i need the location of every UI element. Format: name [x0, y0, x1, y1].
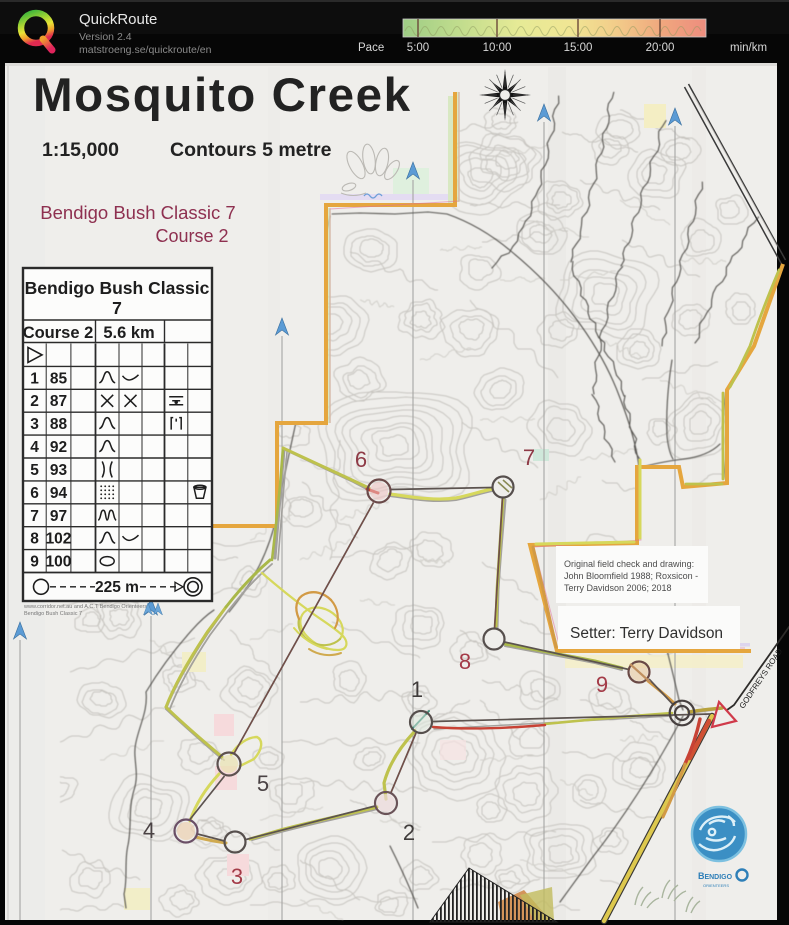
svg-text:Contours 5 metre: Contours 5 metre [170, 139, 332, 161]
svg-text:8: 8 [30, 531, 39, 548]
svg-text:5: 5 [30, 462, 39, 479]
svg-text:min/km: min/km [730, 42, 767, 54]
svg-text:7: 7 [30, 508, 39, 525]
svg-text:97: 97 [50, 508, 67, 525]
svg-text:1:15,000: 1:15,000 [42, 139, 119, 161]
svg-text:6: 6 [30, 485, 39, 502]
svg-text:Bendigo Bush Classic 7: Bendigo Bush Classic 7 [40, 202, 235, 223]
svg-text:Original field check and drawi: Original field check and drawing: [564, 559, 694, 569]
svg-text:3: 3 [231, 864, 243, 889]
svg-text:matstroeng.se/quickroute/en: matstroeng.se/quickroute/en [79, 44, 212, 56]
svg-text:88: 88 [50, 416, 68, 433]
svg-text:3: 3 [30, 416, 39, 433]
svg-text:www.corridor.net.au and A.C.T: www.corridor.net.au and A.C.T Bendigo Or… [23, 604, 147, 610]
svg-text:5: 5 [257, 771, 269, 796]
svg-text:1: 1 [411, 677, 423, 702]
svg-text:Bendigo Bush Classic: Bendigo Bush Classic [25, 278, 210, 298]
svg-text:6: 6 [355, 447, 367, 472]
svg-text:Version 2.4: Version 2.4 [79, 31, 132, 43]
svg-text:9: 9 [30, 554, 39, 571]
svg-text:John Bloomfield 1988; Roxsicon: John Bloomfield 1988; Roxsicon - [564, 571, 698, 581]
svg-text:2: 2 [30, 393, 39, 410]
svg-text:92: 92 [50, 439, 67, 456]
svg-text:ORIENTEERS: ORIENTEERS [703, 883, 729, 888]
svg-text:15:00: 15:00 [564, 42, 593, 54]
svg-text:100: 100 [46, 554, 72, 571]
svg-text:102: 102 [46, 531, 72, 548]
svg-text:9: 9 [596, 672, 608, 697]
svg-text:8: 8 [459, 649, 471, 674]
svg-text:Mosquito Creek: Mosquito Creek [33, 69, 412, 122]
svg-text:5:00: 5:00 [407, 42, 429, 54]
svg-text:Terry Davidson 2006; 2018: Terry Davidson 2006; 2018 [564, 583, 672, 593]
svg-text:4: 4 [143, 818, 155, 843]
svg-text:94: 94 [50, 485, 68, 502]
svg-text:Pace: Pace [358, 42, 384, 54]
svg-text:10:00: 10:00 [483, 42, 512, 54]
svg-text:225 m: 225 m [95, 579, 139, 596]
svg-text:Bendigo Bush Classic 7: Bendigo Bush Classic 7 [24, 611, 82, 617]
svg-text:Course 2: Course 2 [23, 324, 94, 342]
svg-text:4: 4 [30, 439, 39, 456]
svg-text:2: 2 [403, 820, 415, 845]
svg-text:85: 85 [50, 370, 68, 387]
svg-text:Course 2: Course 2 [155, 226, 228, 246]
svg-text:5.6 km: 5.6 km [103, 324, 154, 342]
svg-text:1: 1 [30, 370, 39, 387]
svg-text:87: 87 [50, 393, 67, 410]
svg-text:7: 7 [112, 298, 122, 318]
svg-text:Setter: Terry Davidson: Setter: Terry Davidson [570, 625, 723, 642]
svg-text:QuickRoute: QuickRoute [79, 11, 157, 28]
svg-text:93: 93 [50, 462, 68, 479]
svg-text:20:00: 20:00 [646, 42, 675, 54]
svg-text:7: 7 [523, 445, 535, 470]
